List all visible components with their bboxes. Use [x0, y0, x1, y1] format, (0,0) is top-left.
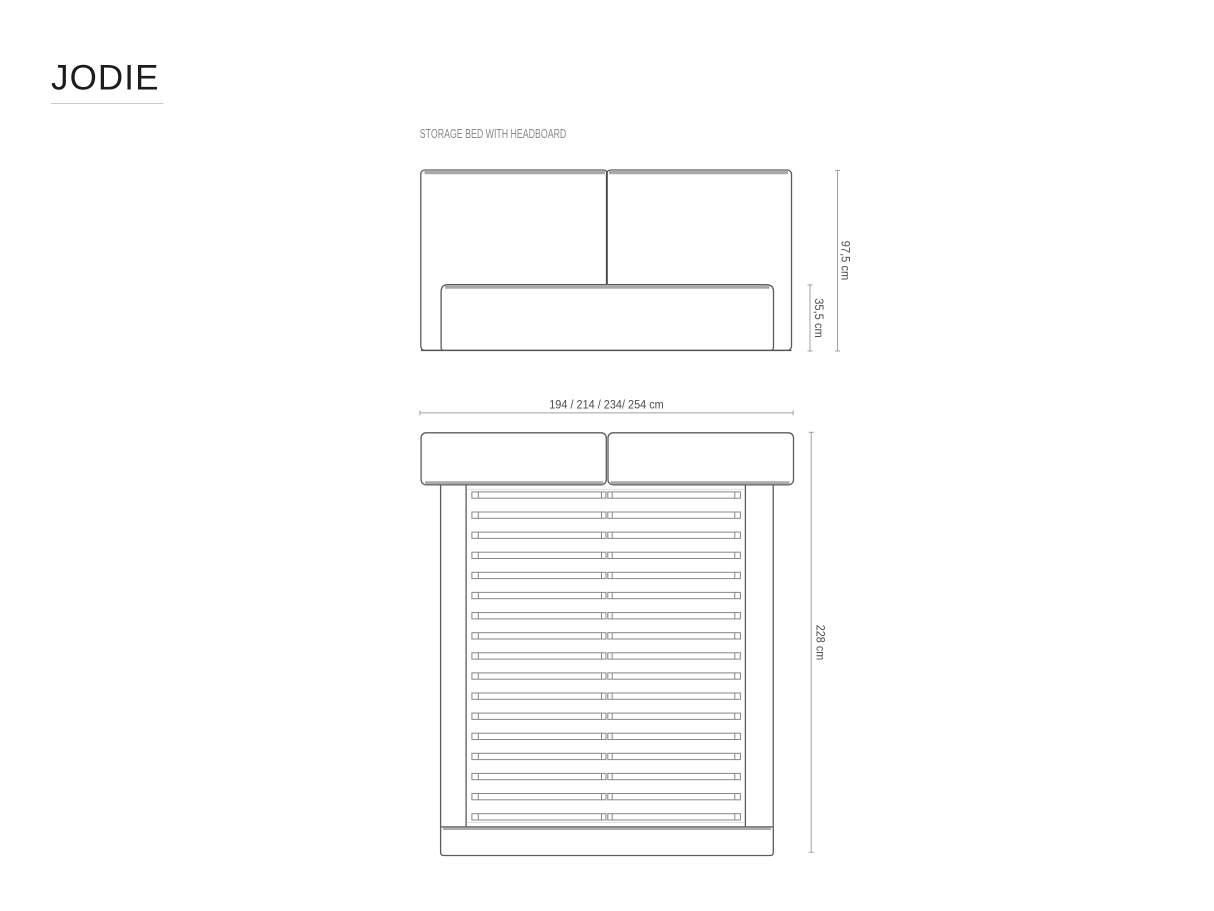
svg-text:194 / 214 / 234/ 254 cm: 194 / 214 / 234/ 254 cm — [549, 398, 664, 412]
svg-text:STORAGE BED WITH HEADBOARD: STORAGE BED WITH HEADBOARD — [420, 126, 567, 141]
svg-text:97,5 cm: 97,5 cm — [839, 241, 853, 281]
svg-text:JODIE: JODIE — [51, 59, 160, 98]
svg-text:228 cm: 228 cm — [814, 625, 828, 661]
svg-text:35,5 cm: 35,5 cm — [812, 298, 826, 338]
